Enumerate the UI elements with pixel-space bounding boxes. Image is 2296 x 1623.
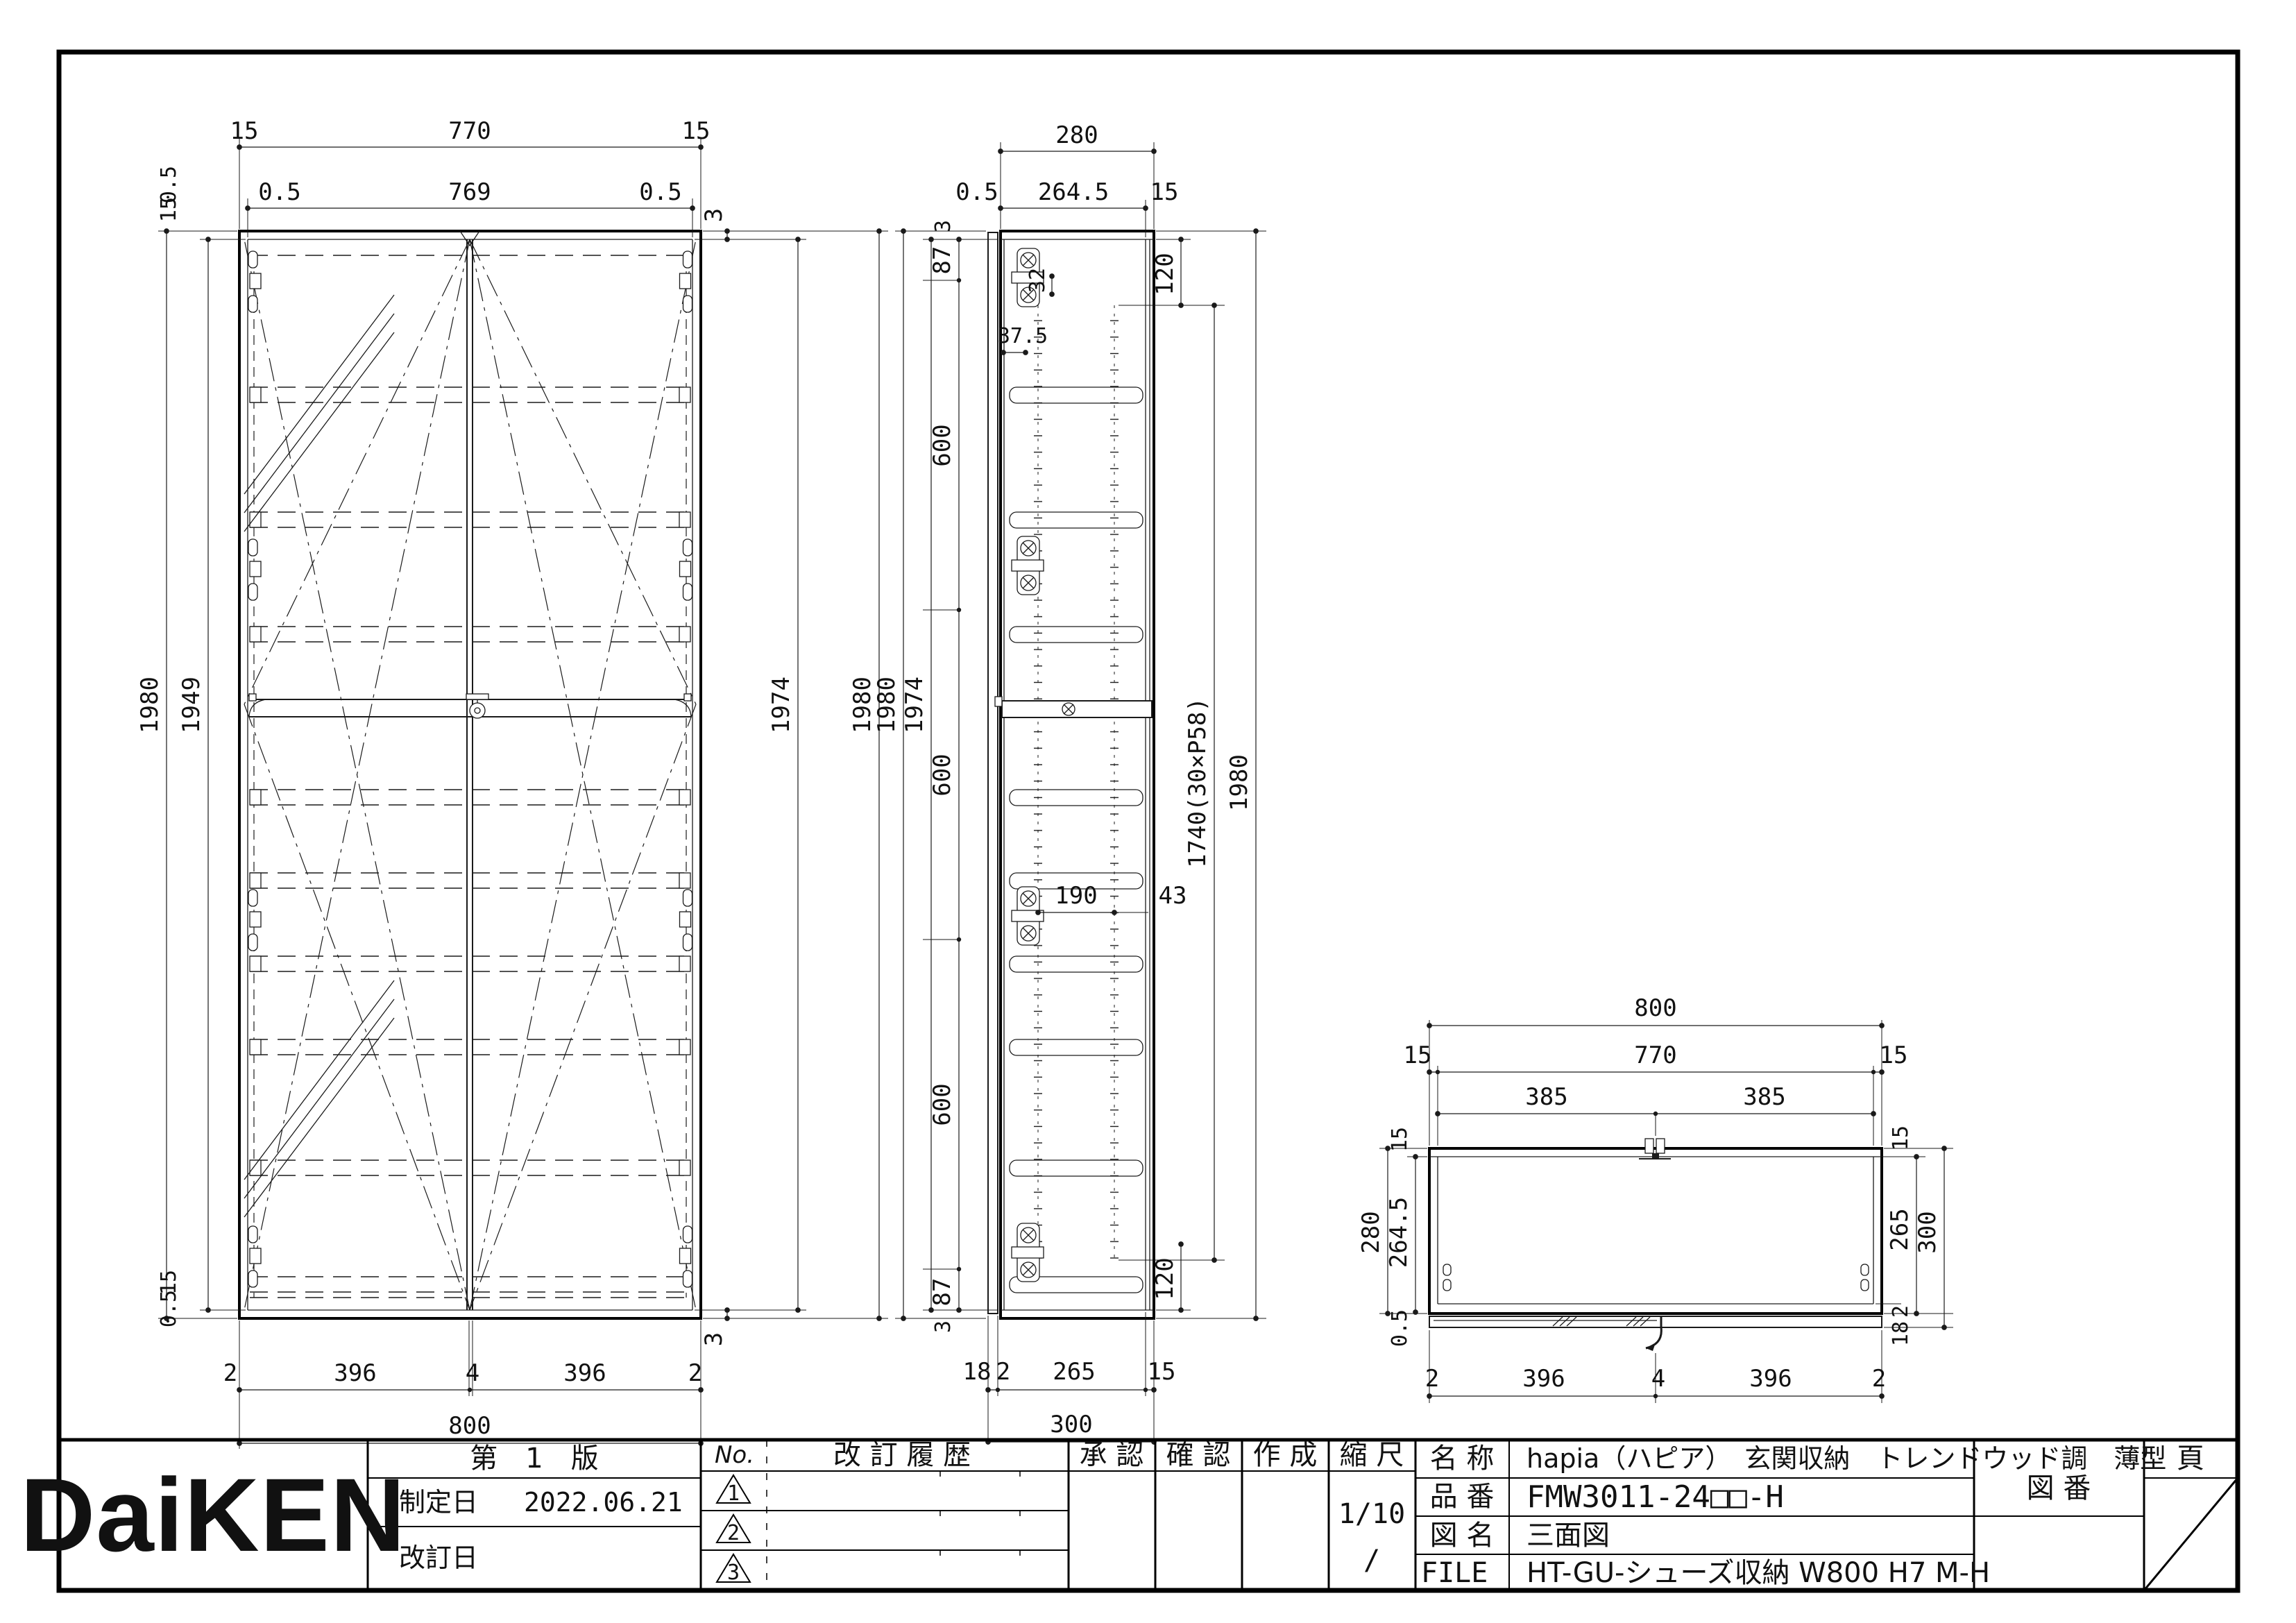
part-value: FMW3011-24□□-H xyxy=(1527,1479,1784,1515)
door-diagonal-marks xyxy=(244,295,394,1217)
dim-label: 2 xyxy=(1425,1365,1439,1393)
rev-mark-2: 2 xyxy=(717,1515,750,1545)
dim-label: 770 xyxy=(448,117,491,145)
dim-label: 300 xyxy=(1050,1411,1092,1438)
dim-label: 1980 xyxy=(873,677,901,733)
dim-label: 87 xyxy=(928,246,956,275)
dim-label: 1980 xyxy=(1225,754,1253,811)
page-cell-diagonal xyxy=(2144,1478,2238,1590)
side-dimensions: 280 0.5 264.5 15 1980 1974 3 87 600 600 … xyxy=(873,121,1266,1445)
dim-label: 120 xyxy=(1151,253,1179,295)
name-label: 名 称 xyxy=(1430,1443,1495,1475)
dim-label: 1980 xyxy=(136,677,164,733)
dim-label: 15 xyxy=(1150,178,1179,206)
dim-label: 396 xyxy=(1749,1365,1792,1393)
dim-label: 3 xyxy=(931,220,955,232)
dim-label: 265 xyxy=(1886,1208,1914,1250)
dim-label: 15 xyxy=(230,117,259,145)
dim-label: 87 xyxy=(928,1278,956,1307)
dim-label: 1740(30×P58) xyxy=(1184,697,1211,868)
dim-label: 396 xyxy=(1522,1365,1565,1393)
door-swing-lines xyxy=(244,239,696,1310)
edition-label: 第 1 版 xyxy=(470,1443,598,1475)
dim-label: 15 xyxy=(682,117,711,145)
dim-label: 4 xyxy=(466,1359,479,1387)
no-label: No. xyxy=(715,1441,754,1469)
rev-mark-number: 3 xyxy=(727,1561,740,1585)
dim-label: 0.5 xyxy=(955,178,998,206)
shelf-hole-columns xyxy=(1034,305,1119,1260)
dim-label: 15 xyxy=(1880,1042,1908,1069)
dim-label: 0.5 xyxy=(157,1290,181,1327)
rev-mark-number: 2 xyxy=(727,1521,740,1545)
dim-label: 190 xyxy=(1055,882,1097,910)
dim-label: 800 xyxy=(448,1412,491,1440)
name-value: hapia（ハピア） 玄関収納 トレンドウッド調 薄型 xyxy=(1527,1443,2166,1474)
dim-label: 2 xyxy=(1889,1305,1913,1318)
dim-label: 15 xyxy=(1889,1125,1913,1150)
rev-mark-3: 3 xyxy=(717,1554,750,1585)
page-label: 頁 xyxy=(2177,1443,2204,1475)
dim-label: 37.5 xyxy=(998,324,1048,348)
rev-mark-number: 1 xyxy=(727,1481,740,1506)
drawing-sheet: 15 770 15 0.5 769 0.5 3 3 1980 1949 0.5 … xyxy=(0,0,2296,1623)
scale-value: 1/10 xyxy=(1338,1498,1405,1530)
create-label: 作 成 xyxy=(1253,1439,1318,1471)
part-label: 品 番 xyxy=(1430,1481,1495,1513)
dim-label: 2 xyxy=(1872,1365,1886,1393)
dim-label: 3 xyxy=(931,1320,955,1333)
dim-label: 1974 xyxy=(901,677,928,733)
dim-label: 280 xyxy=(1055,121,1098,149)
figure-label: 図 名 xyxy=(1430,1520,1495,1552)
dim-label: 4 xyxy=(1651,1365,1665,1393)
dim-label: 2 xyxy=(688,1359,702,1387)
dim-label: 15 xyxy=(1148,1358,1176,1386)
dim-label: 300 xyxy=(1914,1211,1941,1253)
file-label: FILE xyxy=(1421,1557,1488,1589)
file-value: HT-GU-シューズ収納 W800 H7 M-H xyxy=(1527,1557,1990,1589)
plan-door-slab xyxy=(1429,1316,1882,1351)
side-shelves xyxy=(1010,387,1143,1293)
dim-label: 264.5 xyxy=(1038,178,1109,206)
dim-label: 15 xyxy=(1404,1042,1432,1069)
side-view xyxy=(988,231,1154,1318)
dim-label: 280 xyxy=(1357,1211,1385,1253)
figure-value: 三面図 xyxy=(1527,1520,1610,1552)
rev-mark-1: 1 xyxy=(717,1475,750,1506)
dim-label: 15 xyxy=(1388,1127,1412,1152)
dim-label: 385 xyxy=(1743,1083,1785,1111)
dim-label: 18 xyxy=(1889,1321,1913,1346)
dim-label: 32 xyxy=(1026,268,1050,293)
check-label: 確 認 xyxy=(1166,1439,1231,1471)
dim-label: 385 xyxy=(1525,1083,1567,1111)
dim-label: 769 xyxy=(448,178,491,206)
dim-label: 15 xyxy=(157,197,181,222)
dim-label: 18 xyxy=(963,1358,992,1386)
front-view xyxy=(239,231,701,1318)
cad-drawing: 15 770 15 0.5 769 0.5 3 3 1980 1949 0.5 … xyxy=(0,0,2296,1623)
dim-label: 265 xyxy=(1053,1358,1095,1386)
established-date: 2022.06.21 xyxy=(524,1487,683,1518)
dim-label: 0.5 xyxy=(639,178,681,206)
dim-label: 770 xyxy=(1634,1042,1676,1069)
established-label: 制定日 xyxy=(399,1487,478,1518)
door-handle-icon xyxy=(466,694,488,718)
front-shelves-hidden xyxy=(250,387,690,1292)
dim-label: 600 xyxy=(928,1083,956,1125)
dim-label: 120 xyxy=(1151,1257,1179,1300)
title-block: DaiKEN 第 1 版 制定日 2022.06.21 改訂日 No. 改 訂 … xyxy=(20,1439,2238,1590)
dim-label: 0.5 xyxy=(258,178,300,206)
revised-label: 改訂日 xyxy=(399,1543,478,1573)
dim-label: 2 xyxy=(996,1358,1010,1386)
plan-dimensions: 800 15 770 15 385 385 280 264.5 15 0.5 2… xyxy=(1357,994,1953,1403)
dim-label: 43 xyxy=(1159,882,1187,910)
dim-label: 264.5 xyxy=(1385,1197,1413,1268)
dim-label: 600 xyxy=(928,754,956,796)
approval-label: 承 認 xyxy=(1080,1439,1144,1471)
dim-label: 396 xyxy=(563,1359,606,1387)
dim-label: 1974 xyxy=(767,677,795,733)
daiken-logo: DaiKEN xyxy=(20,1456,406,1573)
dim-label: 3 xyxy=(700,1332,728,1346)
scale-label: 縮 尺 xyxy=(1340,1439,1404,1471)
scale-value-2: / xyxy=(1363,1545,1380,1577)
dim-label: 0.5 xyxy=(1388,1309,1412,1347)
drawing-no-label: 図 番 xyxy=(2027,1472,2091,1504)
side-fixed-shelf xyxy=(995,697,1152,717)
dim-label: 1949 xyxy=(178,677,205,733)
dim-label: 600 xyxy=(928,424,956,466)
dim-label: 800 xyxy=(1634,994,1676,1022)
dim-label: 1980 xyxy=(849,677,876,733)
history-label: 改 訂 履 歴 xyxy=(833,1439,971,1471)
dim-label: 2 xyxy=(223,1359,237,1387)
dim-label: 396 xyxy=(334,1359,376,1387)
front-dimensions: 15 770 15 0.5 769 0.5 3 3 1980 1949 0.5 … xyxy=(136,117,888,1449)
plan-view xyxy=(1429,1139,1882,1351)
dim-label: 3 xyxy=(700,208,728,222)
